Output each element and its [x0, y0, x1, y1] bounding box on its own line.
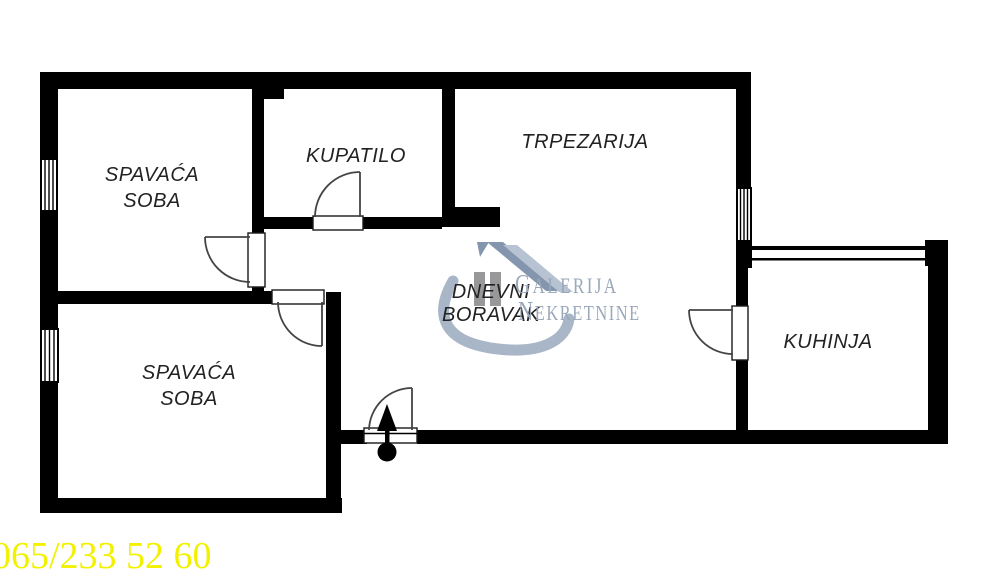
room-label-bedroom-2: SPAVAĆA SOBA [142, 360, 236, 412]
wall-kitchen-left-lower [736, 358, 748, 430]
wall-living-bottom [417, 430, 948, 444]
wall-kitchen-left-upper [736, 268, 748, 308]
window-bedroom2-icon [41, 329, 58, 382]
window-bedroom1-icon [41, 159, 57, 211]
wall-bathroom-dining [442, 88, 455, 207]
floor-plan: SPAVAĆA SOBA KUPATILO TRPEZARIJA DNEVNI … [0, 0, 1000, 583]
wall-bedroom1-bathroom [252, 88, 264, 233]
wall-bedroom1-bathroom-lower [252, 287, 264, 304]
wall-bathroom-pilaster [264, 88, 284, 99]
wall-top [40, 72, 751, 89]
wall-kitchen-right [928, 240, 948, 442]
room-label-bathroom: KUPATILO [306, 143, 406, 169]
door-bedroom2-icon [272, 290, 324, 346]
wall-living-bottom-stub [326, 430, 367, 444]
wall-dining-right-lower [736, 242, 752, 268]
wall-dining-right-upper [736, 88, 751, 187]
wall-left-middle [40, 211, 58, 329]
room-label-dining-room: TRPEZARIJA [521, 129, 648, 155]
wall-left-lower [40, 382, 58, 513]
watermark-text-line2: NEKRETNINE [518, 296, 641, 327]
door-kitchen-icon [689, 306, 748, 360]
room-label-kitchen: KUHINJA [783, 329, 872, 355]
room-label-bedroom-1: SPAVAĆA SOBA [105, 162, 199, 214]
wall-bedrooms-divider [50, 291, 273, 304]
kitchen-window-top-line [752, 246, 925, 250]
wall-bathroom-bottom-right [363, 217, 442, 229]
door-bathroom-icon [313, 172, 363, 230]
door-bedroom1-icon [205, 233, 265, 287]
window-dining-icon [737, 188, 751, 241]
wall-bedroom2-bottom [40, 498, 342, 513]
wall-left-upper [40, 72, 58, 160]
wall-dining-stub [442, 207, 500, 227]
kitchen-window-bottom-line [752, 258, 925, 261]
wall-bedroom2-right [326, 292, 341, 513]
phone-number: 065/233 52 60 [0, 534, 212, 578]
wall-bathroom-bottom-left [252, 217, 313, 229]
